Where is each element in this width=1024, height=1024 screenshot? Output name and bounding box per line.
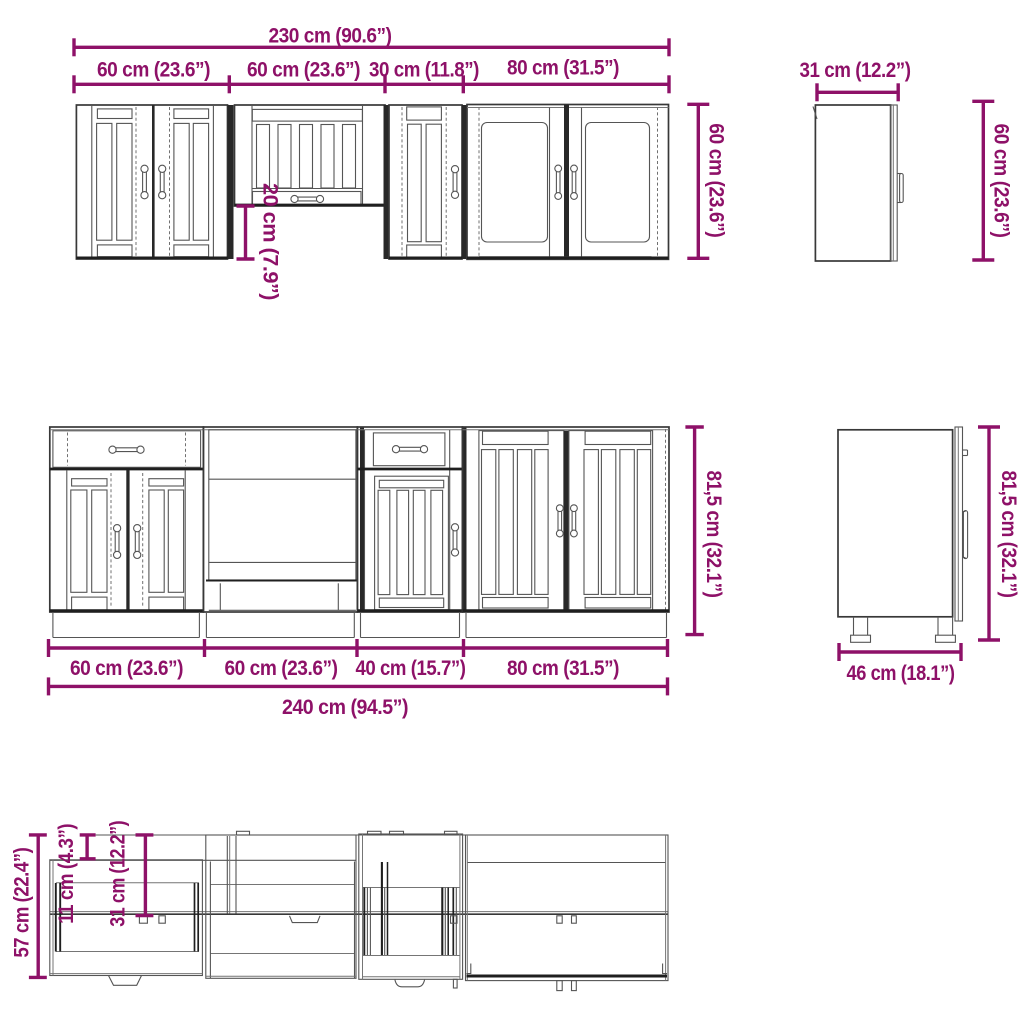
svg-text:30 cm (11.8”): 30 cm (11.8”) bbox=[369, 59, 479, 82]
svg-text:240 cm (94.5”): 240 cm (94.5”) bbox=[282, 696, 408, 719]
svg-text:20 cm (7.9”): 20 cm (7.9”) bbox=[259, 183, 282, 300]
svg-text:31 cm (12.2”): 31 cm (12.2”) bbox=[107, 821, 130, 927]
svg-text:40 cm (15.7”): 40 cm (15.7”) bbox=[356, 657, 466, 680]
svg-text:57 cm (22.4”): 57 cm (22.4”) bbox=[10, 848, 33, 958]
svg-text:60 cm (23.6”): 60 cm (23.6”) bbox=[705, 123, 728, 237]
svg-text:60 cm (23.6”): 60 cm (23.6”) bbox=[97, 59, 210, 82]
svg-text:60 cm (23.6”): 60 cm (23.6”) bbox=[247, 59, 360, 82]
svg-text:31 cm (12.2”): 31 cm (12.2”) bbox=[800, 59, 911, 82]
svg-text:60 cm (23.6”): 60 cm (23.6”) bbox=[990, 124, 1013, 238]
svg-text:60 cm (23.6”): 60 cm (23.6”) bbox=[225, 657, 338, 680]
svg-text:81,5 cm (32.1”): 81,5 cm (32.1”) bbox=[702, 471, 725, 598]
svg-text:80 cm (31.5”): 80 cm (31.5”) bbox=[507, 57, 619, 80]
svg-text:81,5 cm (32.1”): 81,5 cm (32.1”) bbox=[997, 471, 1020, 598]
svg-text:46 cm (18.1”): 46 cm (18.1”) bbox=[847, 662, 955, 685]
svg-text:80 cm (31.5”): 80 cm (31.5”) bbox=[507, 657, 619, 680]
svg-text:60 cm (23.6”): 60 cm (23.6”) bbox=[70, 657, 183, 680]
svg-text:11 cm (4.3”): 11 cm (4.3”) bbox=[55, 824, 78, 924]
svg-text:230 cm (90.6”): 230 cm (90.6”) bbox=[269, 25, 392, 48]
